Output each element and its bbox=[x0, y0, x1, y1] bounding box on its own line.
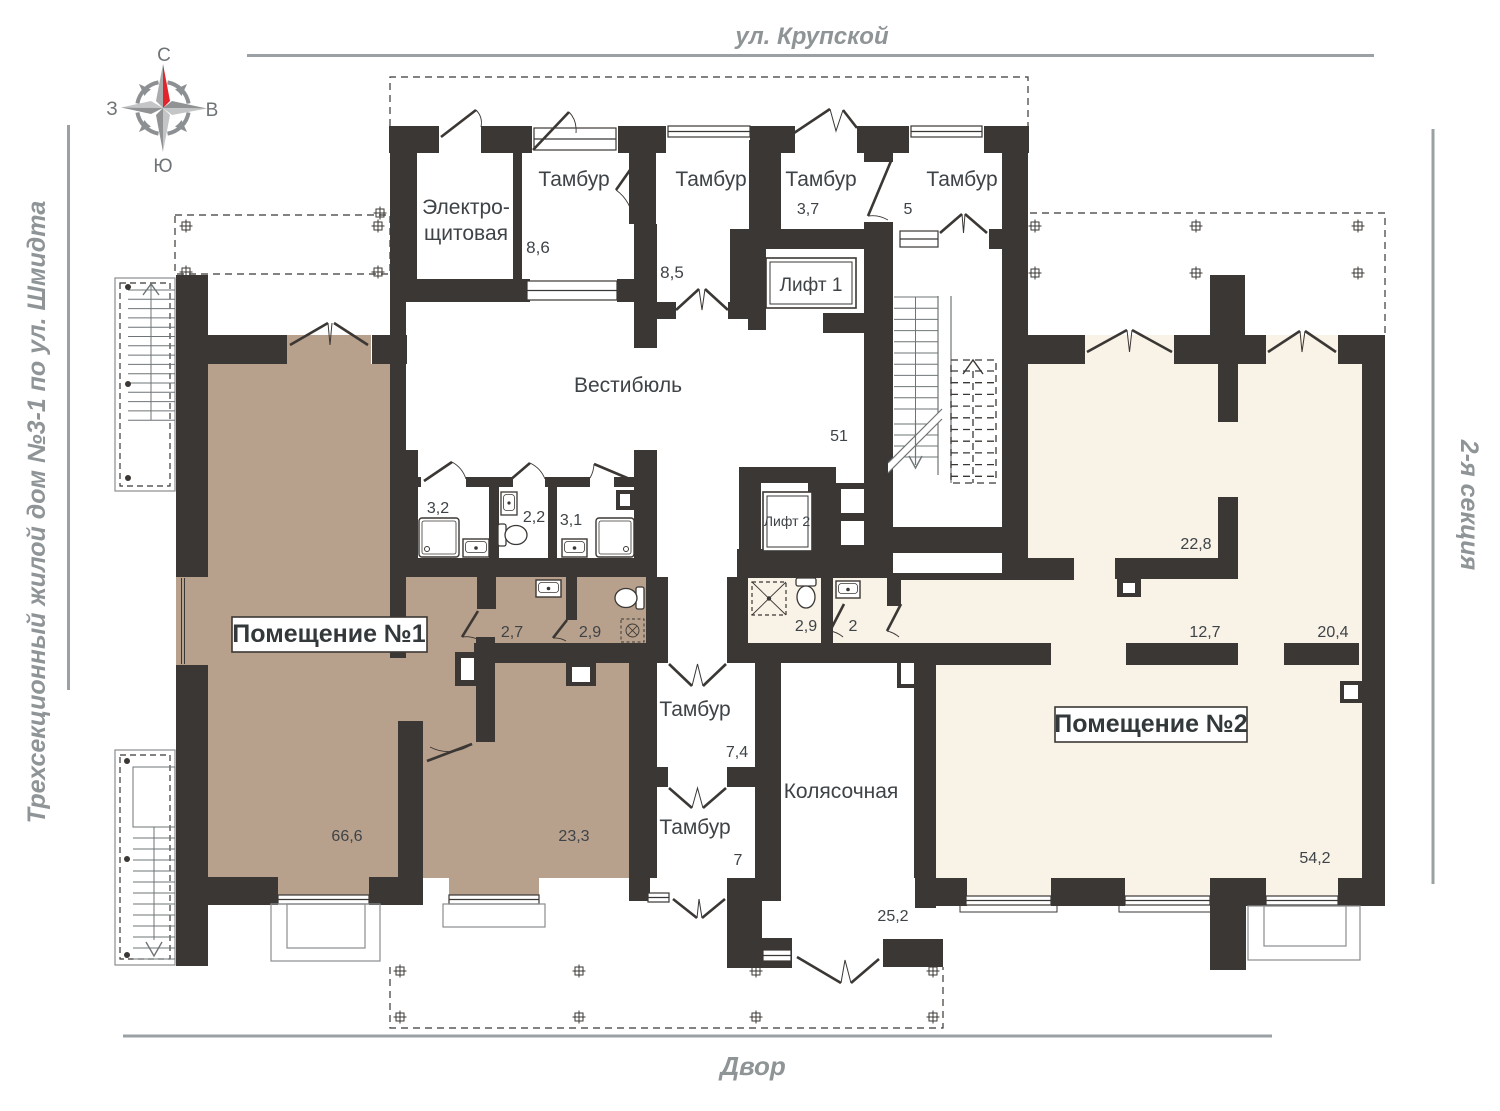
svg-text:Тамбур: Тамбур bbox=[675, 168, 746, 191]
svg-text:12,7: 12,7 bbox=[1189, 624, 1220, 641]
svg-text:22,8: 22,8 bbox=[1180, 536, 1211, 553]
svg-text:Ю: Ю bbox=[153, 156, 172, 177]
svg-text:Электро-: Электро- bbox=[422, 196, 510, 219]
svg-text:3,7: 3,7 bbox=[797, 201, 819, 218]
svg-text:Колясочная: Колясочная bbox=[784, 780, 899, 803]
svg-text:Трехсекционный жилой дом №3-1: Трехсекционный жилой дом №3-1 по ул. Шми… bbox=[23, 201, 51, 824]
svg-text:щитовая: щитовая bbox=[424, 222, 508, 245]
svg-text:2: 2 bbox=[849, 618, 858, 635]
svg-text:ул. Крупской: ул. Крупской bbox=[734, 23, 889, 50]
svg-text:66,6: 66,6 bbox=[331, 828, 362, 845]
svg-text:З: З bbox=[106, 99, 117, 120]
svg-text:Тамбур: Тамбур bbox=[659, 698, 730, 721]
svg-text:Лифт 1: Лифт 1 bbox=[780, 275, 843, 296]
svg-text:Двор: Двор bbox=[718, 1051, 786, 1081]
svg-text:С: С bbox=[157, 45, 171, 66]
svg-text:54,2: 54,2 bbox=[1299, 850, 1330, 867]
svg-text:3,2: 3,2 bbox=[427, 500, 449, 517]
svg-text:8,5: 8,5 bbox=[660, 263, 684, 282]
svg-text:Помещение №1: Помещение №1 bbox=[232, 620, 425, 648]
svg-text:Вестибюль: Вестибюль bbox=[574, 374, 682, 397]
svg-text:23,3: 23,3 bbox=[558, 828, 589, 845]
svg-text:2,7: 2,7 bbox=[501, 624, 523, 641]
svg-text:2,9: 2,9 bbox=[795, 618, 817, 635]
svg-text:2-я секция: 2-я секция bbox=[1455, 439, 1483, 571]
svg-text:Тамбур: Тамбур bbox=[926, 168, 997, 191]
svg-text:Лифт 2: Лифт 2 bbox=[764, 513, 811, 529]
svg-text:В: В bbox=[206, 100, 219, 121]
svg-text:Тамбур: Тамбур bbox=[538, 168, 609, 191]
svg-text:Тамбур: Тамбур bbox=[785, 168, 856, 191]
svg-text:2,2: 2,2 bbox=[523, 509, 545, 526]
svg-text:8,6: 8,6 bbox=[526, 238, 550, 257]
svg-text:20,4: 20,4 bbox=[1317, 624, 1348, 641]
svg-text:7: 7 bbox=[734, 852, 743, 869]
svg-text:Тамбур: Тамбур bbox=[659, 816, 730, 839]
svg-text:2,9: 2,9 bbox=[579, 624, 601, 641]
svg-text:5: 5 bbox=[904, 201, 913, 218]
svg-text:25,2: 25,2 bbox=[877, 908, 908, 925]
svg-text:Помещение №2: Помещение №2 bbox=[1054, 710, 1247, 738]
svg-text:7,4: 7,4 bbox=[726, 744, 748, 761]
svg-text:51: 51 bbox=[830, 428, 848, 445]
svg-text:3,1: 3,1 bbox=[560, 512, 582, 529]
